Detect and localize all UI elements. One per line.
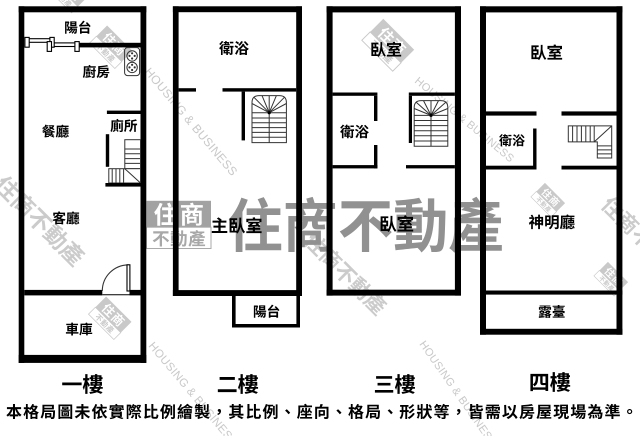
svg-text:HOUSING & BUSINESS: HOUSING & BUSINESS	[146, 340, 240, 436]
svg-text:HOUSING & BUSINESS: HOUSING & BUSINESS	[417, 339, 499, 436]
svg-text:HOUSING & BUSINESS: HOUSING & BUSINESS	[142, 65, 241, 179]
